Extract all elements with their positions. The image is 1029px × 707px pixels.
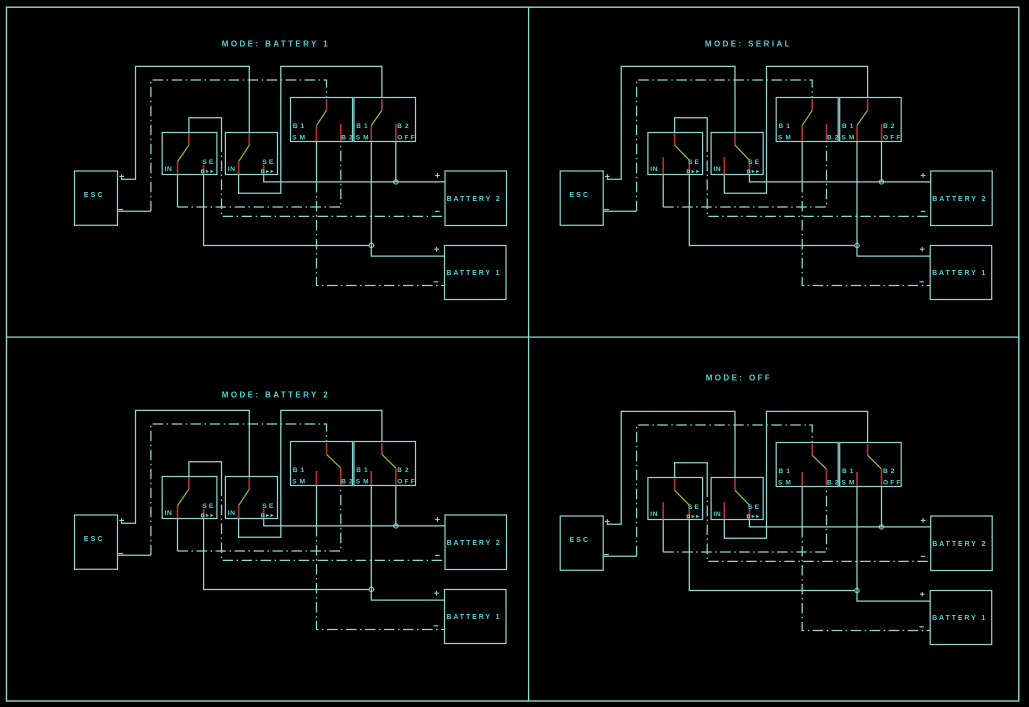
svg-text:IN: IN	[165, 510, 173, 517]
svg-text:B 1: B 1	[779, 468, 791, 475]
svg-text:B 1: B 1	[842, 468, 854, 475]
svg-text:B 1: B 1	[293, 123, 305, 130]
svg-text:SE: SE	[262, 503, 275, 510]
svg-text:SE: SE	[688, 159, 701, 166]
svg-text:B 2: B 2	[341, 479, 353, 486]
svg-text:S M: S M	[356, 135, 369, 142]
svg-text:MODE: BATTERY 1: MODE: BATTERY 1	[222, 39, 330, 48]
svg-text:BATTERY 2: BATTERY 2	[932, 541, 987, 548]
svg-text:SE: SE	[262, 159, 275, 166]
svg-text:IN: IN	[650, 166, 658, 173]
svg-text:S M: S M	[842, 480, 855, 487]
svg-text:IN: IN	[228, 510, 236, 517]
svg-text:BATTERY 2: BATTERY 2	[447, 196, 502, 203]
svg-text:SE: SE	[748, 504, 761, 511]
svg-text:ESC: ESC	[84, 192, 105, 199]
svg-text:SE: SE	[688, 504, 701, 511]
svg-text:BATTERY 1: BATTERY 1	[932, 615, 987, 622]
svg-text:OFF: OFF	[397, 135, 417, 142]
svg-text:OFF: OFF	[883, 480, 903, 487]
svg-text:BATTERY 2: BATTERY 2	[932, 196, 987, 203]
svg-text:ESC: ESC	[570, 537, 591, 544]
svg-text:S M: S M	[842, 135, 855, 142]
svg-text:BATTERY 1: BATTERY 1	[932, 270, 987, 277]
svg-text:B 2: B 2	[341, 135, 353, 142]
svg-text:B 2: B 2	[827, 135, 839, 142]
svg-text:IN: IN	[228, 166, 236, 173]
svg-text:B 1: B 1	[779, 123, 791, 130]
svg-text:B 2: B 2	[397, 123, 409, 130]
svg-text:B 1: B 1	[293, 467, 305, 474]
svg-text:S M: S M	[778, 135, 791, 142]
svg-text:B 1: B 1	[842, 123, 854, 130]
svg-text:S M: S M	[292, 479, 305, 486]
svg-text:B 2: B 2	[397, 467, 409, 474]
svg-text:SE: SE	[748, 159, 761, 166]
svg-text:BATTERY 1: BATTERY 1	[446, 270, 501, 277]
svg-text:SE: SE	[202, 503, 215, 510]
svg-text:OFF: OFF	[883, 135, 903, 142]
svg-text:BATTERY 2: BATTERY 2	[447, 540, 502, 547]
svg-text:B 2: B 2	[827, 480, 839, 487]
svg-text:S M: S M	[778, 480, 791, 487]
svg-text:ESC: ESC	[84, 536, 105, 543]
svg-text:ESC: ESC	[570, 192, 591, 199]
svg-text:IN: IN	[713, 166, 721, 173]
svg-text:SE: SE	[202, 159, 215, 166]
svg-text:B 2: B 2	[883, 468, 895, 475]
svg-text:IN: IN	[650, 511, 658, 518]
svg-text:B 1: B 1	[356, 123, 368, 130]
svg-text:IN: IN	[713, 511, 721, 518]
svg-text:S M: S M	[292, 135, 305, 142]
svg-text:MODE: OFF: MODE: OFF	[706, 374, 772, 383]
svg-text:IN: IN	[165, 166, 173, 173]
svg-text:S M: S M	[356, 479, 369, 486]
svg-text:B 2: B 2	[883, 123, 895, 130]
svg-text:BATTERY 1: BATTERY 1	[446, 614, 501, 621]
svg-text:MODE: BATTERY 2: MODE: BATTERY 2	[222, 390, 330, 399]
svg-text:OFF: OFF	[397, 479, 417, 486]
svg-text:MODE: SERIAL: MODE: SERIAL	[705, 39, 792, 48]
svg-text:B 1: B 1	[356, 467, 368, 474]
